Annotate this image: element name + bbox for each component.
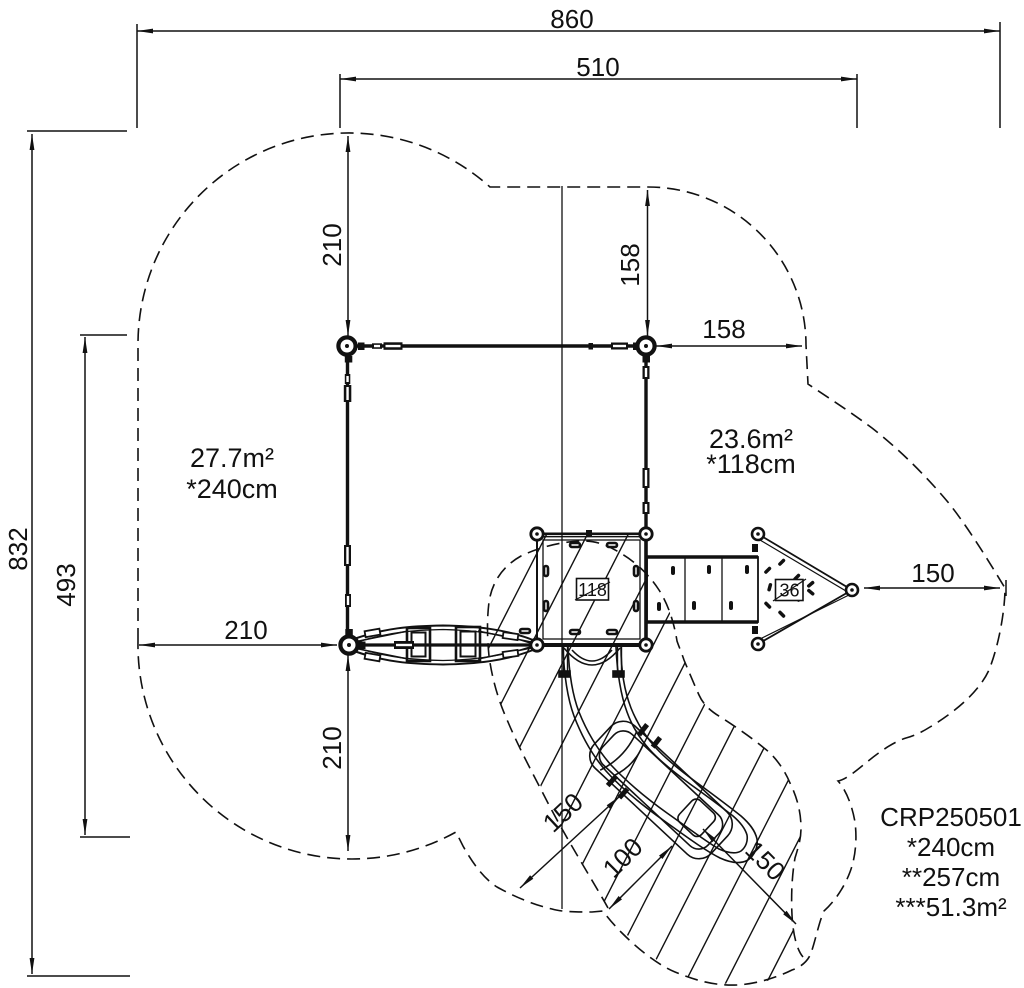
- svg-text:510: 510: [576, 52, 619, 82]
- svg-text:27.7m²: 27.7m²: [190, 443, 274, 473]
- svg-text:210: 210: [224, 615, 267, 645]
- svg-text:150: 150: [911, 558, 954, 588]
- svg-text:158: 158: [702, 314, 745, 344]
- svg-text:210: 210: [317, 223, 347, 266]
- svg-text:118: 118: [578, 580, 607, 600]
- svg-text:158: 158: [615, 243, 645, 286]
- svg-text:832: 832: [3, 527, 33, 570]
- svg-text:210: 210: [317, 726, 347, 769]
- svg-text:*118cm: *118cm: [706, 449, 796, 479]
- svg-text:860: 860: [550, 4, 593, 34]
- svg-text:*240cm: *240cm: [186, 474, 278, 504]
- svg-text:***51.3m²: ***51.3m²: [895, 892, 1007, 922]
- svg-text:CRP250501: CRP250501: [880, 802, 1022, 832]
- svg-text:**257cm: **257cm: [902, 862, 1000, 892]
- svg-text:493: 493: [51, 563, 81, 606]
- svg-text:*240cm: *240cm: [907, 832, 995, 862]
